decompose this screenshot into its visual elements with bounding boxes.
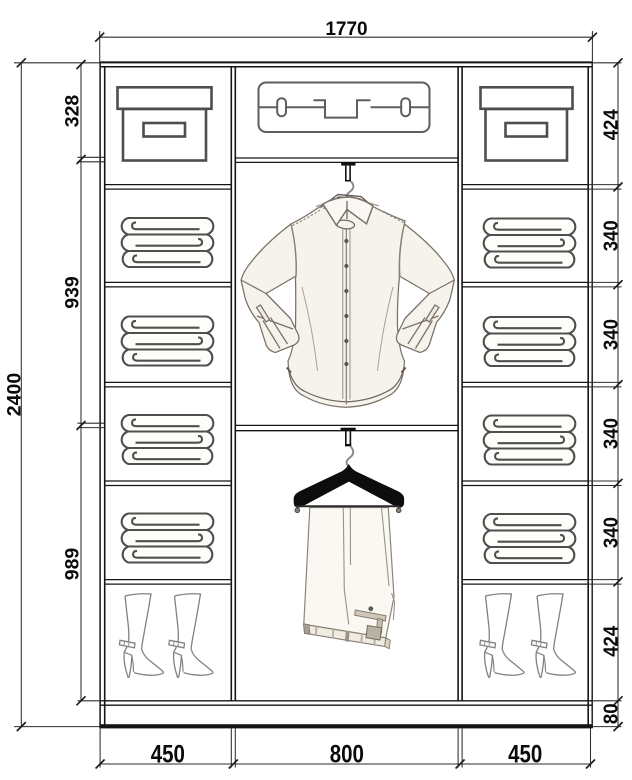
svg-text:2400: 2400 bbox=[3, 373, 25, 417]
svg-text:424: 424 bbox=[601, 626, 623, 657]
svg-text:340: 340 bbox=[601, 220, 623, 251]
svg-text:328: 328 bbox=[61, 95, 83, 128]
svg-text:939: 939 bbox=[61, 276, 83, 309]
svg-text:450: 450 bbox=[151, 740, 185, 768]
svg-text:340: 340 bbox=[601, 418, 623, 449]
svg-text:1770: 1770 bbox=[325, 19, 367, 40]
svg-text:340: 340 bbox=[601, 319, 623, 350]
svg-text:450: 450 bbox=[508, 740, 542, 768]
svg-text:989: 989 bbox=[61, 548, 83, 581]
svg-text:80: 80 bbox=[601, 703, 623, 724]
svg-text:800: 800 bbox=[330, 740, 364, 768]
svg-text:424: 424 bbox=[601, 109, 623, 140]
svg-text:340: 340 bbox=[601, 517, 623, 548]
